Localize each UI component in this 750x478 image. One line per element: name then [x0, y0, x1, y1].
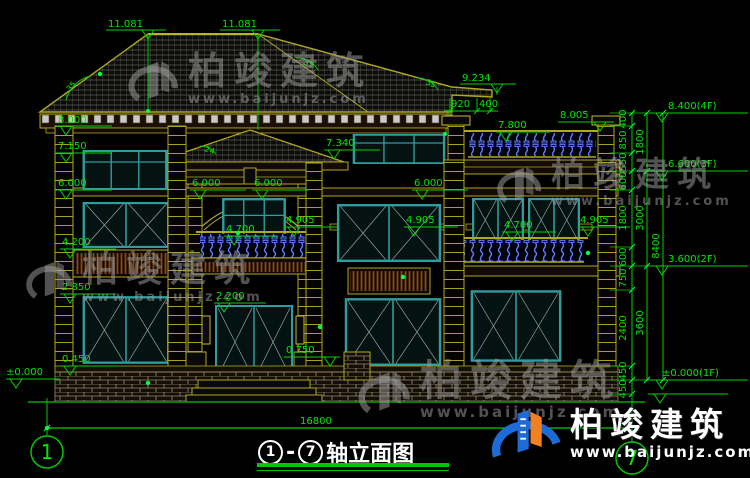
svg-text:3.600(2F): 3.600(2F)	[668, 254, 717, 265]
title-separator: -	[286, 440, 295, 465]
svg-text:7.340: 7.340	[326, 138, 355, 149]
svg-text:8.400(4F): 8.400(4F)	[668, 101, 717, 112]
svg-text:2400: 2400	[618, 315, 629, 340]
terrace-pillar-cap-right	[592, 116, 620, 125]
title-axis-from: 1	[258, 440, 283, 465]
svg-text:4.905: 4.905	[286, 215, 315, 226]
cad-elevation-drawing: 11.081 11.081 9.234 8.000 7.150 6.000 4.…	[0, 0, 750, 478]
window-3f-right-b	[529, 199, 579, 241]
svg-text:11.081: 11.081	[108, 19, 143, 30]
svg-text:±0.000(1F): ±0.000(1F)	[662, 368, 719, 379]
floor-level-2f: 3.600(2F)	[650, 254, 748, 275]
svg-text:3600: 3600	[635, 310, 646, 335]
baijun-brand-logo: 柏竣建筑 www.baijunjz.com	[486, 399, 750, 469]
svg-text:600: 600	[618, 171, 629, 190]
svg-text:4.700: 4.700	[504, 220, 533, 231]
eave-bracket-band	[40, 114, 452, 133]
window-1f-right	[472, 291, 560, 360]
svg-text:920: 920	[451, 99, 470, 110]
svg-text:6.000: 6.000	[192, 178, 221, 189]
svg-text:9.234: 9.234	[462, 73, 491, 84]
svg-text:6.000: 6.000	[58, 178, 87, 189]
svg-text:3000: 3000	[635, 205, 646, 230]
main-roof	[40, 34, 492, 112]
axis-bubble-1: 1	[31, 398, 63, 468]
wall-lamp-right	[296, 316, 304, 344]
logo-brand-text: 柏竣建筑	[570, 408, 750, 441]
wall-lamp-left	[202, 316, 210, 344]
baijun-logo-color-icon	[486, 399, 564, 469]
title-underline-thin	[257, 470, 449, 471]
svg-text:8.000: 8.000	[58, 115, 87, 126]
svg-text:6.600(3F): 6.600(3F)	[668, 159, 717, 170]
logo-site-text: www.baijunjz.com	[570, 445, 750, 460]
svg-text:4.905: 4.905	[406, 215, 435, 226]
svg-text:6.000: 6.000	[254, 178, 283, 189]
window-2f-left	[84, 203, 168, 247]
svg-text:850: 850	[618, 130, 629, 149]
terrace-balustrade	[442, 116, 620, 162]
title-axis-to: 7	[298, 440, 323, 465]
railing-slat-band-middle	[348, 268, 430, 294]
svg-text:6.000: 6.000	[414, 178, 443, 189]
svg-text:4.905: 4.905	[580, 215, 609, 226]
porch-pedestal	[344, 352, 370, 380]
svg-text:0.750: 0.750	[286, 345, 315, 356]
svg-text:7.800: 7.800	[498, 120, 527, 131]
window-3f-left	[84, 151, 167, 189]
svg-text:16800: 16800	[300, 416, 332, 427]
svg-text:450: 450	[618, 379, 629, 398]
svg-text:8400: 8400	[651, 233, 662, 258]
floor-level-3f: 6.600(3F)	[650, 159, 748, 180]
terrace-pillar-cap-left	[442, 116, 470, 125]
svg-text:750: 750	[618, 268, 629, 287]
svg-text:7.150: 7.150	[58, 141, 87, 152]
balcony-balustrade	[192, 232, 316, 274]
entrance-steps	[186, 380, 322, 402]
svg-text:4.200: 4.200	[62, 237, 91, 248]
window-2f-middle	[338, 205, 440, 261]
svg-text:400: 400	[479, 99, 498, 110]
svg-text:1800: 1800	[618, 205, 629, 230]
window-1f-left	[84, 297, 168, 362]
level-mark-0000: ±0.000	[6, 367, 60, 388]
svg-text:2.200: 2.200	[216, 291, 245, 302]
dimension-chain-right: 400 850 550 600 1800 600 750 2400 450 45…	[610, 109, 666, 398]
svg-text:1: 1	[41, 440, 54, 464]
svg-text:400: 400	[618, 109, 629, 128]
svg-text:1800: 1800	[635, 129, 646, 154]
svg-text:600: 600	[618, 247, 629, 266]
right-2f-balustrade	[454, 238, 588, 262]
svg-text:0.450: 0.450	[62, 354, 91, 365]
svg-text:4.700: 4.700	[226, 224, 255, 235]
svg-text:2.850: 2.850	[62, 282, 91, 293]
floor-level-1f: ±0.000(1F)	[650, 368, 748, 389]
svg-text:±0.000: ±0.000	[6, 367, 43, 378]
svg-text:8.005: 8.005	[560, 110, 589, 121]
svg-text:450: 450	[618, 361, 629, 380]
svg-text:11.081: 11.081	[222, 19, 257, 30]
railing-slat-band-left	[73, 250, 184, 277]
svg-text:550: 550	[618, 152, 629, 171]
window-3f-middle	[354, 135, 444, 164]
title-underline-thick	[257, 463, 449, 467]
